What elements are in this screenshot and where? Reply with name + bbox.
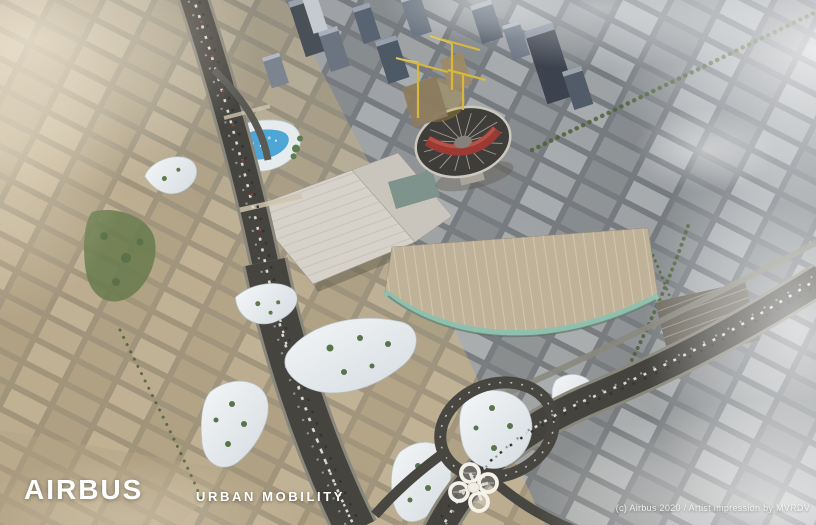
hero-image: AIRBUS URBAN MOBILITY (c) Airbus 2020 / … [0,0,816,525]
airbus-logo: AIRBUS [24,474,143,506]
credit: (c) Airbus 2020 / Artist impression by M… [616,503,810,513]
tagline: URBAN MOBILITY [196,489,345,504]
aerial-city-rendering [0,0,816,525]
